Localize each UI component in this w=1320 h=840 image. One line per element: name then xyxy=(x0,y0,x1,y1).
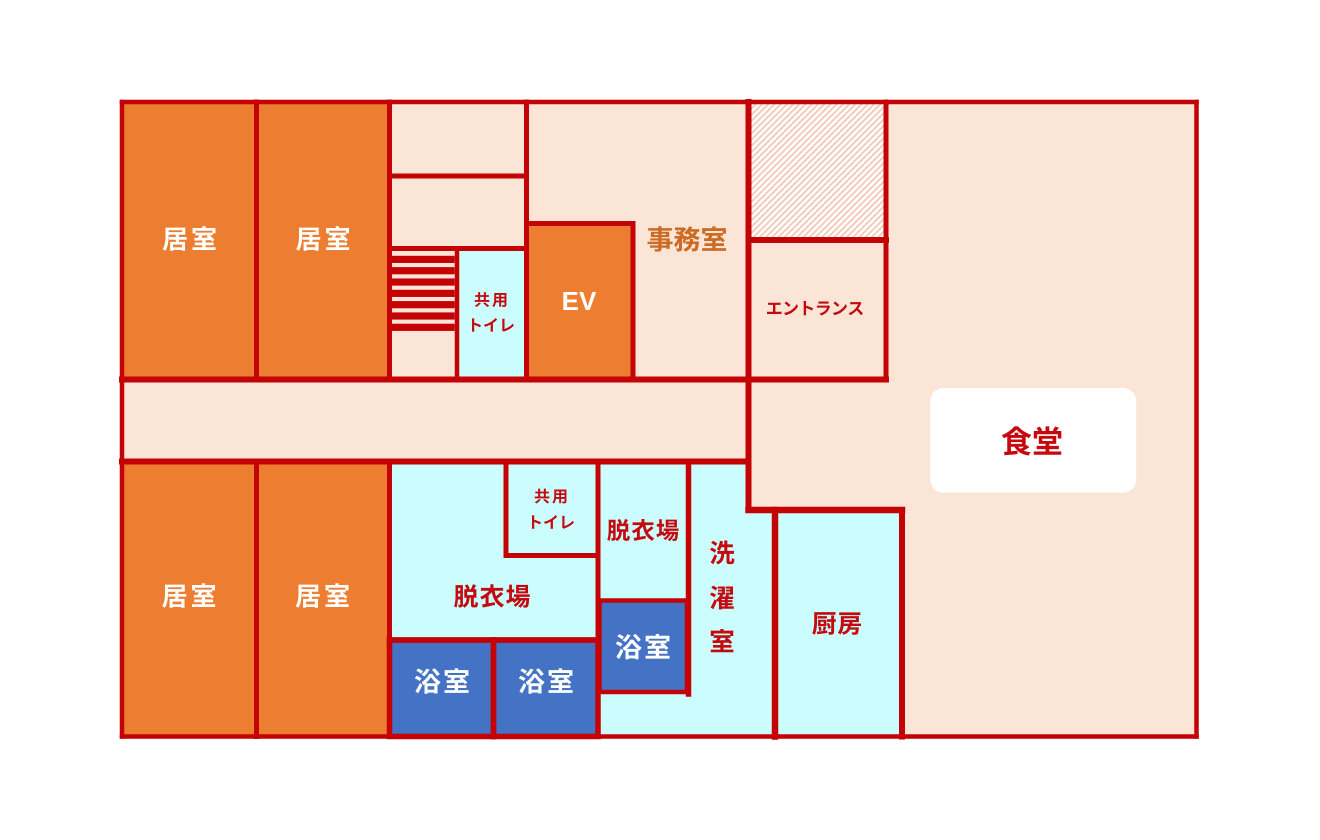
svg-text:EV: EV xyxy=(562,286,597,316)
